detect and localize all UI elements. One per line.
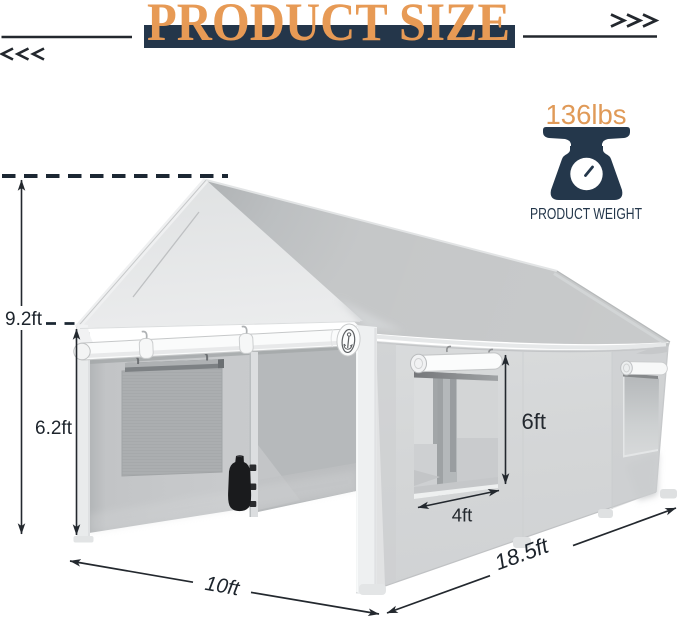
svg-text:10ft: 10ft	[203, 572, 242, 601]
svg-text:4ft: 4ft	[452, 505, 473, 526]
svg-text:9.2ft: 9.2ft	[5, 309, 43, 330]
svg-text:6.2ft: 6.2ft	[35, 418, 73, 439]
svg-text:6ft: 6ft	[522, 409, 546, 434]
svg-text:PRODUCT WEIGHT: PRODUCT WEIGHT	[530, 206, 642, 223]
svg-text:PRODUCT SIZE: PRODUCT SIZE	[147, 0, 510, 52]
svg-text:136lbs: 136lbs	[546, 99, 627, 130]
